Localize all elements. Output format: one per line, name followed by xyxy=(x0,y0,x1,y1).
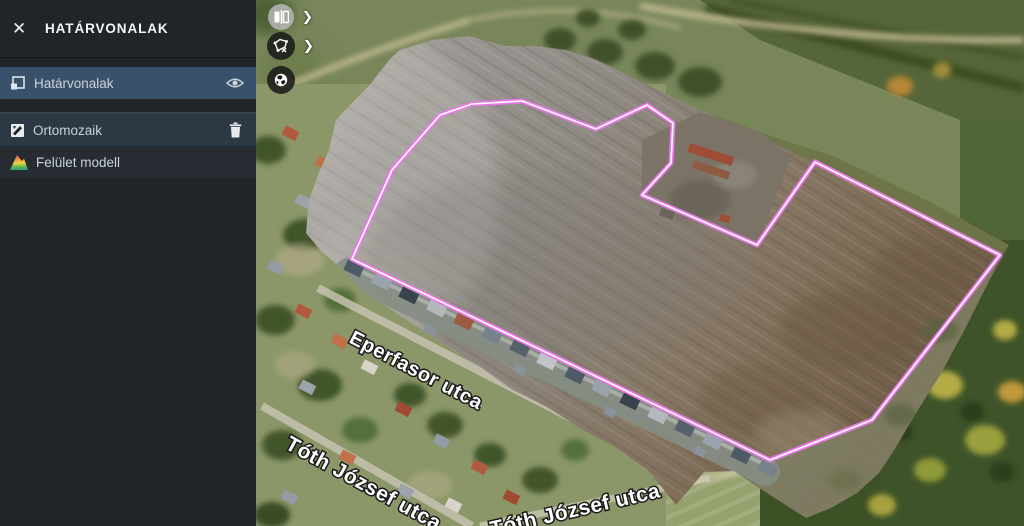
visibility-toggle-button[interactable] xyxy=(224,72,246,94)
toolbar-row-globe xyxy=(267,66,295,94)
sidebar-title: HATÁRVONALAK xyxy=(45,21,169,36)
toolbar-row-compare: ❯ xyxy=(268,4,313,30)
globe-button[interactable] xyxy=(267,66,295,94)
globe-icon xyxy=(273,72,289,88)
trash-icon xyxy=(229,122,242,138)
layer-label: Határvonalak xyxy=(34,76,114,91)
expand-chevron-2[interactable]: ❯ xyxy=(303,39,314,54)
toolbar-row-crop: ❯ xyxy=(267,32,314,60)
close-icon[interactable]: ✕ xyxy=(12,19,34,39)
layer-label: Ortomozaik xyxy=(33,123,102,138)
orthomosaic-icon xyxy=(10,123,25,138)
layer-item-hatarvonalak[interactable]: Határvonalak xyxy=(0,67,256,99)
vector-layer-icon xyxy=(10,75,26,91)
layers-sidebar: ✕ HATÁRVONALAK Határvonalak xyxy=(0,0,256,526)
compare-layers-button[interactable] xyxy=(268,4,294,30)
surface-model-icon xyxy=(10,155,28,170)
layer-item-ortomozaik[interactable]: Ortomozaik xyxy=(0,112,256,146)
app-window: Eperfasor utca Tóth József utca Tóth Józ… xyxy=(0,0,1024,526)
crop-polygon-icon xyxy=(273,38,289,54)
eye-icon xyxy=(226,77,244,89)
crop-polygon-button[interactable] xyxy=(267,32,295,60)
layer-item-felulet-modell[interactable]: Felület modell xyxy=(0,146,256,178)
sidebar-header: ✕ HATÁRVONALAK xyxy=(0,0,256,58)
compare-layers-icon xyxy=(274,10,289,24)
layer-label: Felület modell xyxy=(36,155,120,170)
expand-chevron-1[interactable]: ❯ xyxy=(302,10,313,25)
delete-layer-button[interactable] xyxy=(224,119,246,141)
